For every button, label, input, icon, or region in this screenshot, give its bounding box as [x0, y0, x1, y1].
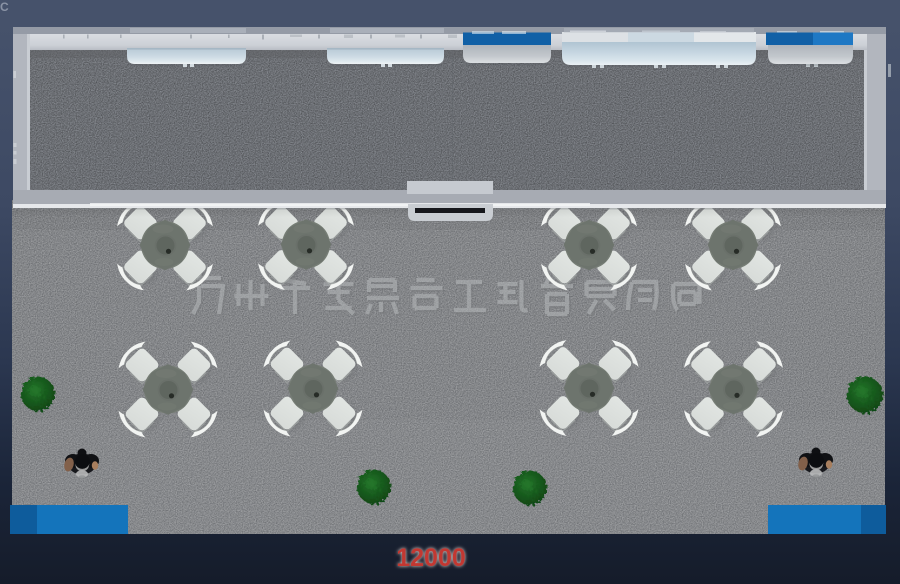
svg-text:12000: 12000 — [396, 544, 466, 572]
svg-text:C: C — [0, 0, 9, 14]
